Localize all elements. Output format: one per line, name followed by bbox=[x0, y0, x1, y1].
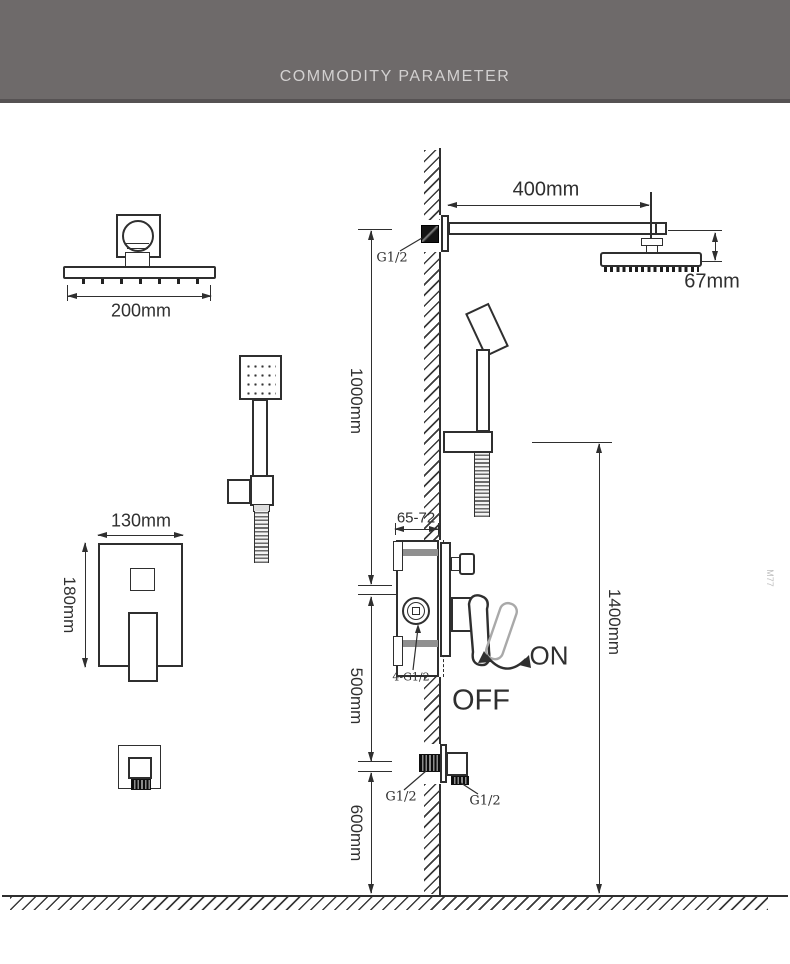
valve-to-outlet-dimension bbox=[371, 597, 372, 761]
arm-to-valve-label: 1000mm bbox=[346, 368, 366, 434]
valve-ports-thread-label: 4-G1/2 bbox=[392, 671, 429, 684]
leader-lines-and-lever bbox=[0, 0, 790, 964]
rain-head-nozzle bbox=[177, 279, 180, 284]
head-height-ref-top bbox=[668, 230, 722, 231]
rain-head-front bbox=[63, 266, 216, 279]
header-bar: COMMODITY PARAMETER bbox=[0, 0, 790, 103]
rain-head-nozzle bbox=[101, 279, 104, 284]
lever-off-position bbox=[484, 601, 519, 661]
valve-depth-dimension bbox=[395, 529, 438, 530]
watermark-text: M77 bbox=[765, 569, 775, 587]
head-connector-rod bbox=[650, 192, 652, 240]
wall-hatching bbox=[424, 784, 440, 894]
outlet-wall-thread-label: G1/2 bbox=[385, 790, 416, 805]
head-height-ref-bottom bbox=[702, 261, 722, 262]
rain-head-nozzle bbox=[120, 279, 123, 284]
mixer-width-dimension bbox=[98, 535, 183, 536]
valve-flange-top bbox=[393, 541, 403, 571]
arm-length-dimension bbox=[448, 205, 649, 206]
hand-shower-hose bbox=[254, 511, 269, 563]
rain-head-nozzle bbox=[158, 279, 161, 284]
dim-tick bbox=[358, 585, 392, 586]
rain-head-ball-line bbox=[127, 248, 148, 249]
outlet-to-floor-label: 600mm bbox=[346, 805, 366, 862]
valve-pipe-stub-top bbox=[403, 549, 438, 556]
valve-flange-bottom bbox=[393, 636, 403, 666]
outlet-height-dimension bbox=[599, 444, 600, 893]
commodity-parameter-diagram: COMMODITY PARAMETER 400mm G1/2 67mm 200m… bbox=[0, 0, 790, 964]
wall-hatching bbox=[424, 150, 440, 220]
valve-pipe-stub-bottom bbox=[403, 640, 438, 647]
rain-head-ball-line bbox=[126, 243, 149, 244]
dim-tick bbox=[358, 771, 392, 772]
mixer-diverter-button bbox=[130, 568, 155, 591]
dim-tick bbox=[358, 229, 392, 230]
wall-hand-shower-hose bbox=[474, 453, 490, 517]
valve-to-outlet-label: 500mm bbox=[346, 668, 366, 725]
wall-hand-shower-bracket bbox=[443, 431, 493, 453]
outlet-front-connector bbox=[131, 779, 151, 790]
head-height-label: 67mm bbox=[684, 271, 740, 294]
arm-to-valve-dimension bbox=[371, 231, 372, 584]
mixer-height-label: 180mm bbox=[59, 577, 79, 634]
wall-hatching bbox=[424, 677, 440, 744]
lever-base bbox=[451, 597, 479, 632]
arm-inlet-thread-label: G1/2 bbox=[376, 251, 407, 266]
diverter-knob bbox=[459, 553, 475, 575]
hand-shower-spray-face bbox=[245, 362, 276, 395]
outlet-body bbox=[446, 752, 468, 776]
valve-inlet-port-square bbox=[412, 607, 420, 615]
valve-trim-plate-edge bbox=[440, 542, 451, 657]
arm-length-label: 400mm bbox=[513, 179, 580, 202]
outlet-height-label: 1400mm bbox=[604, 589, 624, 655]
head-width-label: 200mm bbox=[111, 301, 171, 322]
valve-depth-label: 65-72 bbox=[397, 510, 435, 527]
arm-wall-escutcheon bbox=[441, 215, 449, 252]
outlet-spout-thread bbox=[451, 776, 469, 785]
shower-arm bbox=[448, 222, 667, 235]
mixer-height-dimension bbox=[85, 543, 86, 667]
shower-arm-endcap bbox=[655, 222, 657, 235]
rain-shower-head-side bbox=[600, 252, 702, 267]
mixer-lever-handle bbox=[128, 612, 158, 682]
rain-head-nozzle bbox=[139, 279, 142, 284]
head-height-dimension bbox=[715, 233, 716, 260]
outlet-front-inner bbox=[128, 757, 152, 779]
hand-shower-holder-cradle bbox=[250, 475, 274, 506]
outlet-to-floor-dimension bbox=[371, 773, 372, 893]
dim-tick bbox=[358, 761, 392, 762]
rotation-arc-arrow bbox=[486, 655, 526, 669]
wall-hatching bbox=[424, 252, 440, 540]
mixer-width-label: 130mm bbox=[111, 511, 171, 532]
wall-hand-shower-handle bbox=[476, 349, 490, 432]
page-title: COMMODITY PARAMETER bbox=[0, 68, 790, 86]
switch-off-label: OFF bbox=[452, 685, 510, 718]
rain-head-neck bbox=[125, 252, 150, 267]
switch-on-label: ON bbox=[530, 641, 569, 672]
hand-shower-handle bbox=[252, 399, 268, 479]
rain-head-nozzle bbox=[82, 279, 85, 284]
head-width-dimension bbox=[68, 296, 211, 297]
hand-shower-holder bbox=[227, 479, 251, 504]
arm-wall-thread-fitting bbox=[421, 225, 439, 243]
rain-head-nozzle bbox=[196, 279, 199, 284]
outlet-spout-thread-label: G1/2 bbox=[469, 794, 500, 809]
outlet-wall-thread bbox=[419, 754, 440, 772]
floor-hatching bbox=[10, 897, 768, 910]
